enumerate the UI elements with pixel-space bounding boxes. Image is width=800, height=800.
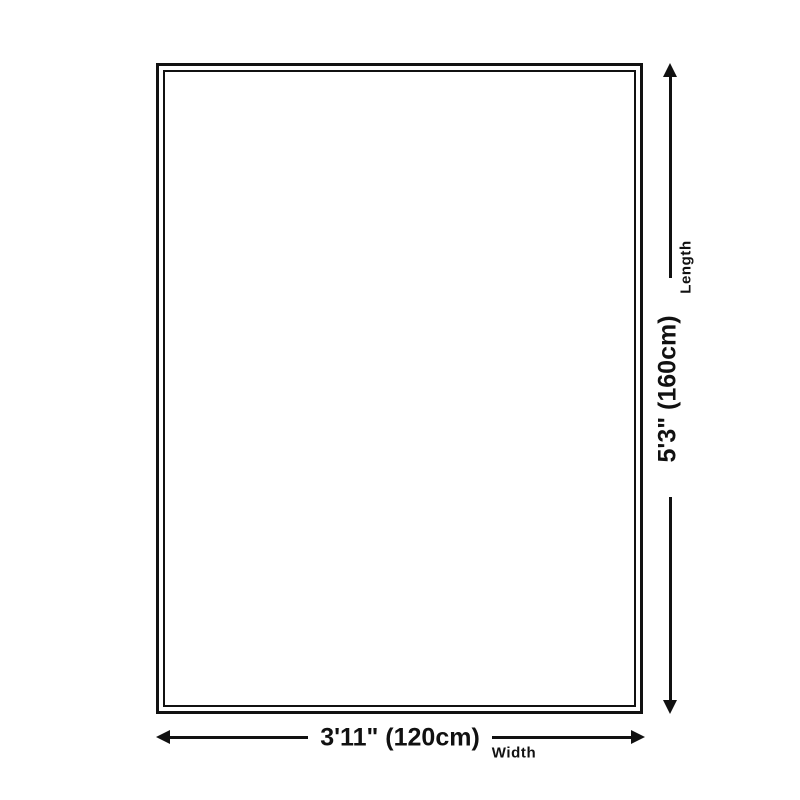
width-axis-label: Width [492, 746, 537, 761]
arrow-down-icon [663, 700, 677, 714]
arrow-right-icon [631, 730, 645, 744]
arrow-left-icon [156, 730, 170, 744]
length-axis-label: Length [679, 240, 694, 294]
width-dimension-line-left [170, 736, 308, 739]
width-dimension-line-right [492, 736, 631, 739]
length-dimension-line-top [669, 77, 672, 278]
length-dimension-line-bottom [669, 497, 672, 700]
rug-outline-inner [163, 70, 636, 707]
rug-size-diagram: Length 5'3" (160cm) 3'11" (120cm) Width [0, 0, 800, 800]
length-dimension-value: 5'3" (160cm) [656, 315, 681, 462]
width-dimension-value: 3'11" (120cm) [320, 726, 480, 751]
arrow-up-icon [663, 63, 677, 77]
